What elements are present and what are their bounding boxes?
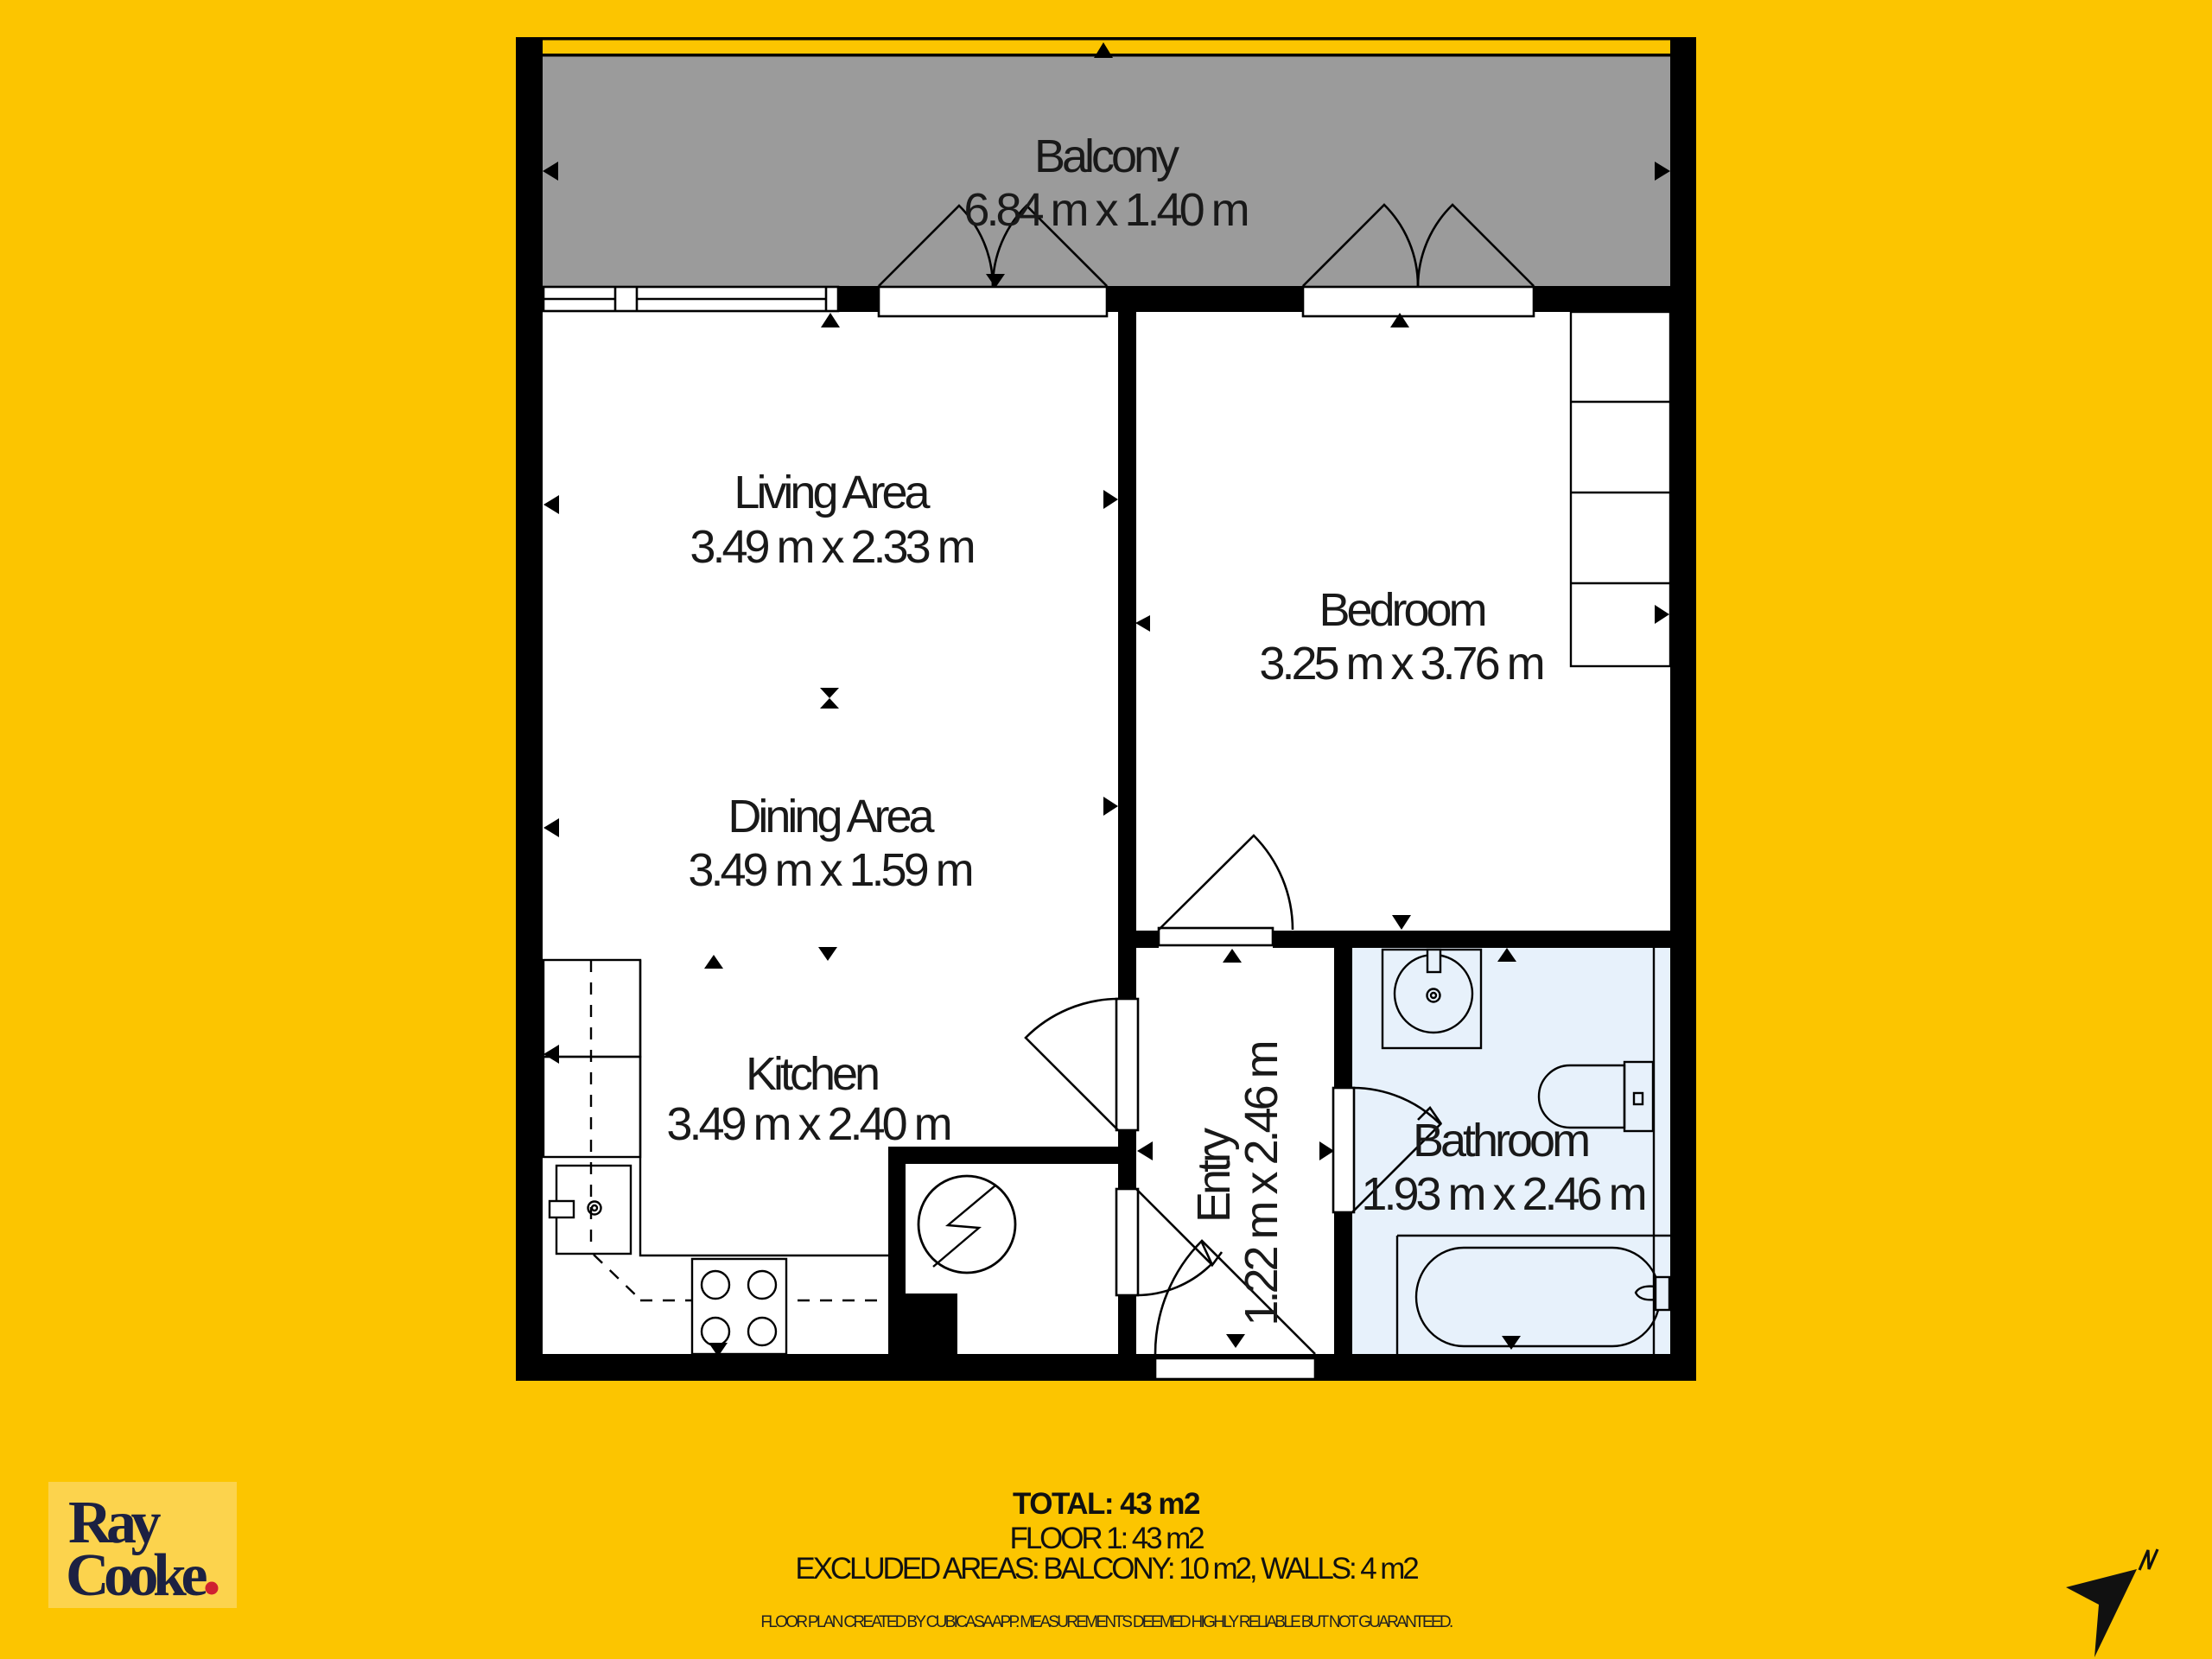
svg-text:Cooke: Cooke [66, 1542, 207, 1609]
svg-text:FLOOR 1: 43 m2: FLOOR 1: 43 m2 [1009, 1522, 1204, 1555]
svg-text:Bathroom: Bathroom [1413, 1115, 1588, 1166]
svg-text:3.49 m x 2.40 m: 3.49 m x 2.40 m [666, 1098, 950, 1150]
svg-text:1.93 m x 2.46 m: 1.93 m x 2.46 m [1361, 1168, 1644, 1220]
svg-text:Entry: Entry [1188, 1128, 1240, 1223]
svg-text:EXCLUDED AREAS: BALCONY: 10 m2: EXCLUDED AREAS: BALCONY: 10 m2, WALLS: 4… [795, 1552, 1418, 1586]
svg-text:Living Area: Living Area [734, 467, 931, 518]
svg-text:TOTAL: 43 m2: TOTAL: 43 m2 [1013, 1487, 1200, 1521]
svg-text:Kitchen: Kitchen [746, 1048, 878, 1100]
svg-text:Bedroom: Bedroom [1319, 584, 1484, 636]
svg-text:1.22 m x 2.46 m: 1.22 m x 2.46 m [1236, 1042, 1287, 1325]
svg-text:3.49 m x 2.33 m: 3.49 m x 2.33 m [690, 521, 973, 573]
svg-text:Balcony: Balcony [1034, 130, 1179, 182]
svg-text:6.84 m x 1.40 m: 6.84 m x 1.40 m [963, 184, 1247, 236]
svg-text:3.49 m x 1.59 m: 3.49 m x 1.59 m [688, 844, 971, 896]
svg-text:FLOOR PLAN CREATED BY CUBICASA: FLOOR PLAN CREATED BY CUBICASA APP. MEAS… [760, 1613, 1452, 1631]
svg-text:Dining Area: Dining Area [728, 791, 935, 842]
svg-text:3.25 m x 3.76 m: 3.25 m x 3.76 m [1259, 638, 1542, 690]
